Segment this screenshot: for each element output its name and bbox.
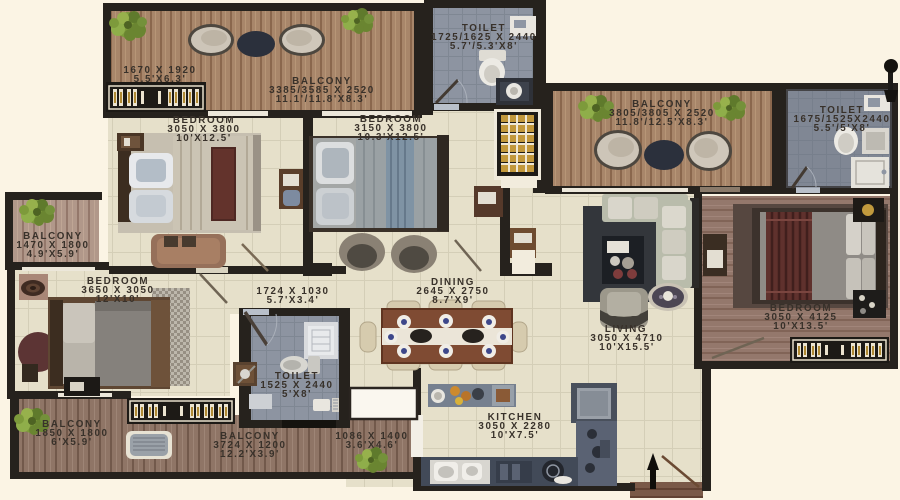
svg-text:5.7'/5.3'X8': 5.7'/5.3'X8'	[450, 41, 518, 52]
svg-text:11.8'/12.5'X8.3': 11.8'/12.5'X8.3'	[615, 117, 708, 128]
svg-text:12'X10': 12'X10'	[96, 294, 140, 305]
svg-text:8.7'X9': 8.7'X9'	[432, 295, 473, 306]
svg-text:11.1'/11.8'X8.3': 11.1'/11.8'X8.3'	[276, 94, 369, 105]
svg-text:10.3'X12.5': 10.3'X12.5'	[358, 132, 425, 143]
svg-text:5.5'/5'X8': 5.5'/5'X8'	[814, 123, 871, 134]
svg-text:12.2'X3.9': 12.2'X3.9'	[220, 449, 280, 460]
svg-text:4.9'X5.9': 4.9'X5.9'	[27, 249, 80, 260]
svg-text:5.7'X3.4': 5.7'X3.4'	[267, 295, 320, 306]
svg-text:5.5'X6.3': 5.5'X6.3'	[134, 74, 187, 85]
svg-text:6'X5.9': 6'X5.9'	[51, 437, 92, 448]
svg-text:10'X12.5': 10'X12.5'	[176, 133, 232, 144]
svg-text:3.6'X4.6': 3.6'X4.6'	[346, 440, 399, 451]
svg-text:10'X7.5': 10'X7.5'	[491, 430, 540, 441]
svg-text:10'X15.5': 10'X15.5'	[599, 342, 655, 353]
svg-text:5'X8': 5'X8'	[282, 389, 312, 400]
svg-text:10'X13.5': 10'X13.5'	[773, 321, 829, 332]
